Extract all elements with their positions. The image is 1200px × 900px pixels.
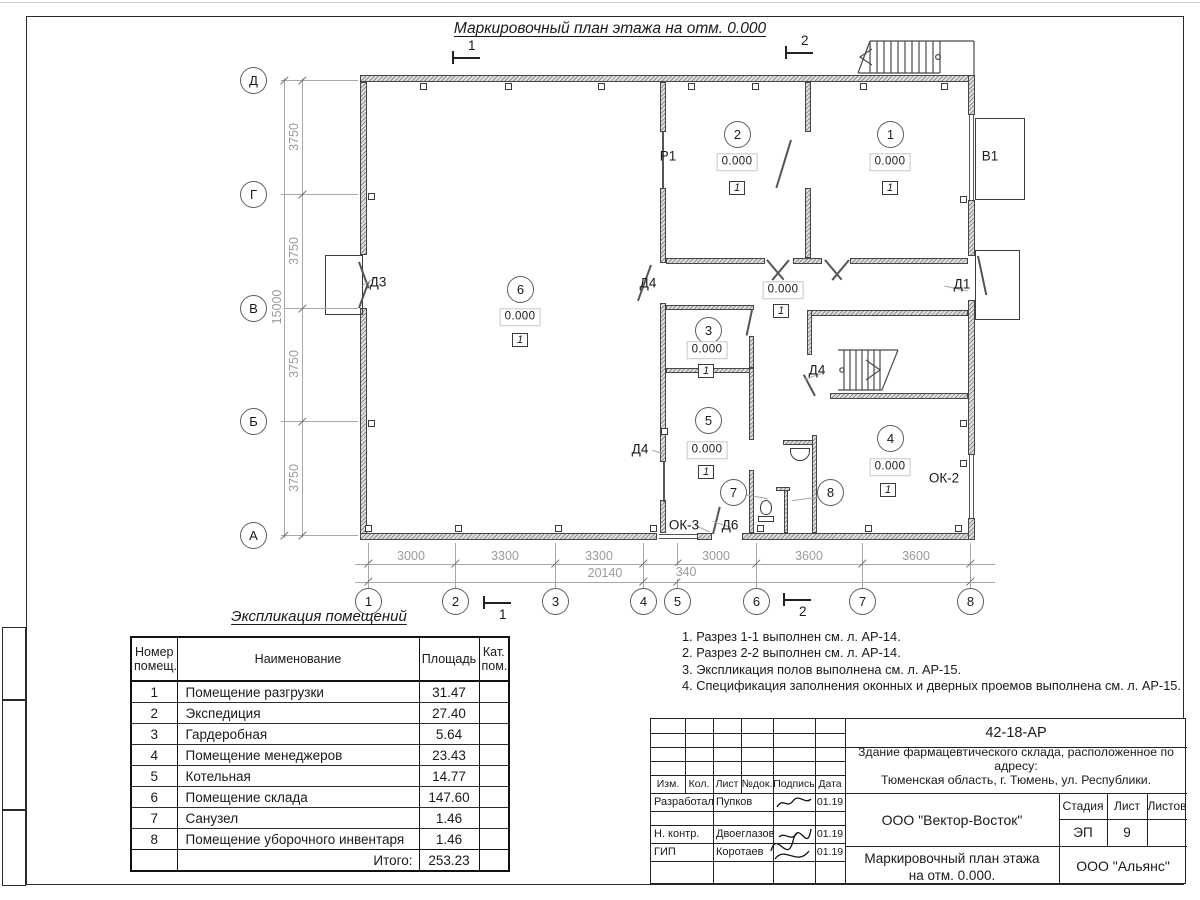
axis-extension-line	[455, 543, 456, 588]
dim-label: 3000	[700, 550, 732, 563]
page-edge	[0, 2, 1200, 3]
wall	[968, 75, 975, 115]
legend-row: 3Гардеробная5.64	[131, 724, 509, 745]
legend-cell: 1.46	[419, 829, 479, 850]
wall	[660, 188, 666, 263]
axis-bubble: В	[240, 295, 267, 322]
drawing-name-line2: на отм. 0.000.	[845, 866, 1059, 884]
legend-cell: 8	[131, 829, 177, 850]
room-marker: 7	[720, 479, 747, 506]
elevation-mark: 0.000	[870, 153, 911, 171]
axis-extension-line	[555, 543, 556, 588]
legend-cell: Помещение менеджеров	[177, 745, 419, 766]
sign-name: Двоеглазов	[713, 825, 773, 843]
legend-cell: 5	[131, 766, 177, 787]
wall	[968, 300, 975, 455]
opening-label: ОК-2	[929, 471, 959, 486]
legend-row: 7Санузел1.46	[131, 808, 509, 829]
axis-extension-line	[281, 194, 358, 195]
pilaster	[420, 83, 427, 90]
opening-label: Д4	[632, 442, 649, 457]
dim-label: 15000	[271, 288, 284, 327]
margin-box	[2, 627, 26, 700]
legend-row: 2Экспедиция27.40	[131, 703, 509, 724]
floor-type-mark: 1	[698, 364, 714, 378]
section-line	[452, 51, 454, 64]
opening-label: Р1	[660, 149, 677, 164]
legend-cell: 1.46	[419, 808, 479, 829]
title-block: Изм. Кол. Лист №док. Подпись Дата Разраб…	[650, 718, 1186, 884]
legend-cell: 3	[131, 724, 177, 745]
legend-cell	[479, 850, 509, 872]
axis-extension-line	[862, 543, 863, 588]
axis-bubble: 4	[630, 588, 657, 615]
legend-cell	[479, 787, 509, 808]
sign-role: ГИП	[651, 843, 713, 861]
exterior-stair	[848, 37, 976, 77]
dim-label: 3300	[489, 550, 521, 563]
toilet-icon	[760, 500, 772, 515]
pilaster	[941, 83, 948, 90]
dim-label: 3750	[288, 348, 301, 380]
wall	[968, 518, 975, 540]
pilaster	[368, 420, 375, 427]
legend-title: Экспликация помещений	[130, 608, 508, 625]
pilaster	[955, 525, 962, 532]
axis-bubble: 3	[542, 588, 569, 615]
room-marker: 8	[817, 479, 844, 506]
room-marker: 1	[877, 121, 904, 148]
legend-cell	[479, 766, 509, 787]
col-list: Лист	[713, 775, 741, 793]
note-line: 3. Экспликация полов выполнена см. л. АР…	[682, 662, 1181, 678]
dim-label: 3600	[793, 550, 825, 563]
pilaster	[365, 525, 372, 532]
legend-cell: 5.64	[419, 724, 479, 745]
legend-cell: Помещение разгрузки	[177, 681, 419, 703]
room-marker: 4	[877, 425, 904, 452]
legend-cell	[479, 724, 509, 745]
dim-label: 3750	[288, 121, 301, 153]
pilaster	[505, 83, 512, 90]
pilaster	[455, 525, 462, 532]
object-line2: Тюменская область, г. Тюмень, ул. Респуб…	[845, 768, 1187, 792]
note-line: 1. Разрез 1-1 выполнен см. л. АР-14.	[682, 629, 1181, 645]
wall	[660, 500, 666, 533]
col-izm: Изм.	[651, 775, 685, 793]
legend-cell: Помещение уборочного инвентаря	[177, 829, 419, 850]
pilaster	[960, 420, 967, 427]
legend-cell: 7	[131, 808, 177, 829]
col-ndok: №док.	[741, 775, 773, 793]
pilaster	[757, 525, 764, 532]
legend-cell	[131, 850, 177, 872]
wall	[360, 533, 657, 540]
axis-bubble: 6	[743, 588, 770, 615]
wall	[807, 310, 812, 355]
opening-label: Д4	[640, 276, 657, 291]
legend-cell	[479, 808, 509, 829]
col-data: Дата	[815, 775, 845, 793]
room-marker: 2	[724, 121, 751, 148]
axis-bubble: 8	[957, 588, 984, 615]
sign-date: 01.19	[815, 793, 845, 811]
axis-extension-line	[281, 421, 358, 422]
axis-bubble: Б	[240, 408, 267, 435]
wall	[805, 188, 811, 258]
pilaster	[960, 196, 967, 203]
wall	[968, 200, 975, 256]
dim-label: 20140	[586, 567, 625, 580]
opening-label: ОК-3	[669, 518, 699, 533]
wall	[749, 470, 754, 533]
door-leaf	[663, 462, 665, 502]
legend-row: 6Помещение склада147.60	[131, 787, 509, 808]
wall	[805, 82, 811, 132]
dim-label: 3300	[583, 550, 615, 563]
room-marker: 6	[507, 276, 534, 303]
wall	[697, 533, 712, 540]
elevation-mark: 0.000	[687, 341, 728, 359]
wall	[850, 258, 968, 264]
floor-type-mark: 1	[698, 465, 714, 479]
margin-box	[2, 700, 26, 810]
legend-cell: Помещение склада	[177, 787, 419, 808]
section-line	[454, 57, 480, 59]
stage-value: ЭП	[1059, 819, 1107, 846]
signature	[775, 795, 813, 811]
pilaster	[555, 525, 562, 532]
notes-list: 1. Разрез 1-1 выполнен см. л. АР-14.2. Р…	[682, 629, 1181, 695]
drawing-sheet: Маркировочный план этажа на отм. 0.000	[0, 0, 1200, 900]
wall	[660, 82, 666, 132]
room-legend-table: Номер помещ. Наименование Площадь Кат. п…	[130, 636, 510, 872]
sheets-label: Листов	[1147, 793, 1187, 819]
floor-type-mark: 1	[512, 333, 528, 347]
sign-date: 01.19	[815, 825, 845, 843]
elevation-mark: 0.000	[763, 281, 804, 299]
floor-type-mark: 1	[773, 304, 789, 318]
legend-cell: 4	[131, 745, 177, 766]
legend-cell: 14.77	[419, 766, 479, 787]
legend-row: 4Помещение менеджеров23.43	[131, 745, 509, 766]
dim-label: 3600	[900, 550, 932, 563]
drawing-name-line1: Маркировочный план этажа	[845, 849, 1059, 867]
opening-label: Д3	[370, 275, 387, 290]
sign-name: Коротаев	[713, 843, 773, 861]
wall	[793, 258, 822, 264]
col-header-category: Кат. пом.	[479, 637, 509, 681]
sheets-value	[1147, 819, 1187, 846]
note-line: 4. Спецификация заполнения оконных и две…	[682, 678, 1181, 694]
axis-extension-line	[281, 80, 358, 81]
legend-cell	[479, 703, 509, 724]
legend-cell: 147.60	[419, 787, 479, 808]
elevation-mark: 0.000	[870, 458, 911, 476]
axis-bubble: Г	[240, 181, 267, 208]
interior-stair	[836, 348, 900, 394]
wall	[811, 310, 968, 316]
legend-cell: Итого:	[177, 850, 419, 872]
pilaster	[368, 193, 375, 200]
opening-label: В1	[982, 149, 999, 164]
legend-cell	[479, 829, 509, 850]
pilaster	[860, 83, 867, 90]
wall	[360, 308, 367, 540]
wall	[749, 368, 754, 440]
wall	[742, 533, 975, 540]
sign-name: Пупков	[713, 793, 773, 811]
note-line: 2. Разрез 2-2 выполнен см. л. АР-14.	[682, 645, 1181, 661]
legend-total-row: Итого:253.23	[131, 850, 509, 872]
pilaster	[865, 525, 872, 532]
pilaster	[661, 428, 668, 435]
pilaster	[598, 83, 605, 90]
section-line	[787, 52, 813, 54]
sign-role: Н. контр.	[651, 825, 713, 843]
floor-type-mark: 1	[882, 181, 898, 195]
elevation-mark: 0.000	[687, 441, 728, 459]
section-line	[485, 602, 511, 604]
legend-row: 8Помещение уборочного инвентаря1.46	[131, 829, 509, 850]
org-designer: ООО "Вектор-Восток"	[845, 793, 1059, 846]
section-marker: 2	[799, 604, 807, 619]
wall	[666, 258, 765, 264]
stage-label: Стадия	[1059, 793, 1107, 819]
legend-cell: 253.23	[419, 850, 479, 872]
dim-label: 3000	[395, 550, 427, 563]
elevation-mark: 0.000	[500, 308, 541, 326]
legend-cell: 27.40	[419, 703, 479, 724]
axis-bubble: А	[240, 522, 267, 549]
room-marker: 5	[695, 407, 722, 434]
axis-extension-line	[281, 308, 358, 309]
dim-label: 3750	[288, 235, 301, 267]
legend-cell: 1	[131, 681, 177, 703]
dim-label: 340	[674, 566, 699, 579]
sheet-value: 9	[1107, 819, 1147, 846]
section-line	[785, 46, 787, 59]
dim-label: 3750	[288, 462, 301, 494]
col-header-name: Наименование	[177, 637, 419, 681]
col-podpis: Подпись	[773, 775, 815, 793]
opening-label: Д1	[954, 277, 971, 292]
window-ok3	[659, 534, 697, 539]
org-customer: ООО "Альянс"	[1059, 846, 1187, 885]
legend-cell: 6	[131, 787, 177, 808]
sign-role: Разработал	[651, 793, 713, 811]
wall	[784, 487, 788, 533]
pilaster	[960, 460, 967, 467]
legend-cell	[479, 745, 509, 766]
section-marker: 2	[801, 33, 809, 48]
gate-v1	[969, 115, 974, 200]
opening-label: Д6	[722, 518, 739, 533]
room-marker: 3	[695, 317, 722, 344]
legend-cell: 23.43	[419, 745, 479, 766]
margin-box	[2, 810, 26, 886]
wall	[749, 336, 754, 368]
sign-date: 01.19	[815, 843, 845, 861]
signature	[767, 821, 815, 865]
floor-type-mark: 1	[880, 483, 896, 497]
elevation-mark: 0.000	[717, 153, 758, 171]
pilaster	[650, 525, 657, 532]
legend-row: 1Помещение разгрузки31.47	[131, 681, 509, 703]
axis-bubble: Д	[240, 67, 267, 94]
legend-cell: Гардеробная	[177, 724, 419, 745]
pilaster	[752, 83, 759, 90]
toilet-tank-icon	[758, 516, 774, 522]
axis-extension-line	[281, 535, 358, 536]
section-marker: 1	[468, 38, 476, 53]
sheet-label: Лист	[1107, 793, 1147, 819]
section-line	[785, 599, 811, 601]
axis-bubble: 5	[664, 588, 691, 615]
legend-cell: Санузел	[177, 808, 419, 829]
legend-cell: Экспедиция	[177, 703, 419, 724]
col-kol: Кол.	[685, 775, 713, 793]
legend-row: 5Котельная14.77	[131, 766, 509, 787]
wall	[666, 305, 754, 310]
wall	[660, 303, 666, 462]
wall	[360, 82, 367, 255]
opening-label: Д4	[809, 363, 826, 378]
legend-cell	[479, 681, 509, 703]
doc-number: 42-18-АР	[845, 719, 1187, 747]
axis-extension-line	[756, 543, 757, 588]
col-header-area: Площадь	[419, 637, 479, 681]
pilaster	[688, 83, 695, 90]
window-ok2	[969, 455, 974, 518]
legend-cell: Котельная	[177, 766, 419, 787]
wall	[812, 435, 817, 533]
platform-d1	[975, 250, 1020, 320]
legend-cell: 31.47	[419, 681, 479, 703]
floor-type-mark: 1	[729, 181, 745, 195]
wall	[776, 487, 790, 491]
dock-d3	[325, 255, 363, 315]
axis-bubble: 7	[849, 588, 876, 615]
section-line	[783, 593, 785, 606]
legend-cell: 2	[131, 703, 177, 724]
col-header-number: Номер помещ.	[131, 637, 177, 681]
